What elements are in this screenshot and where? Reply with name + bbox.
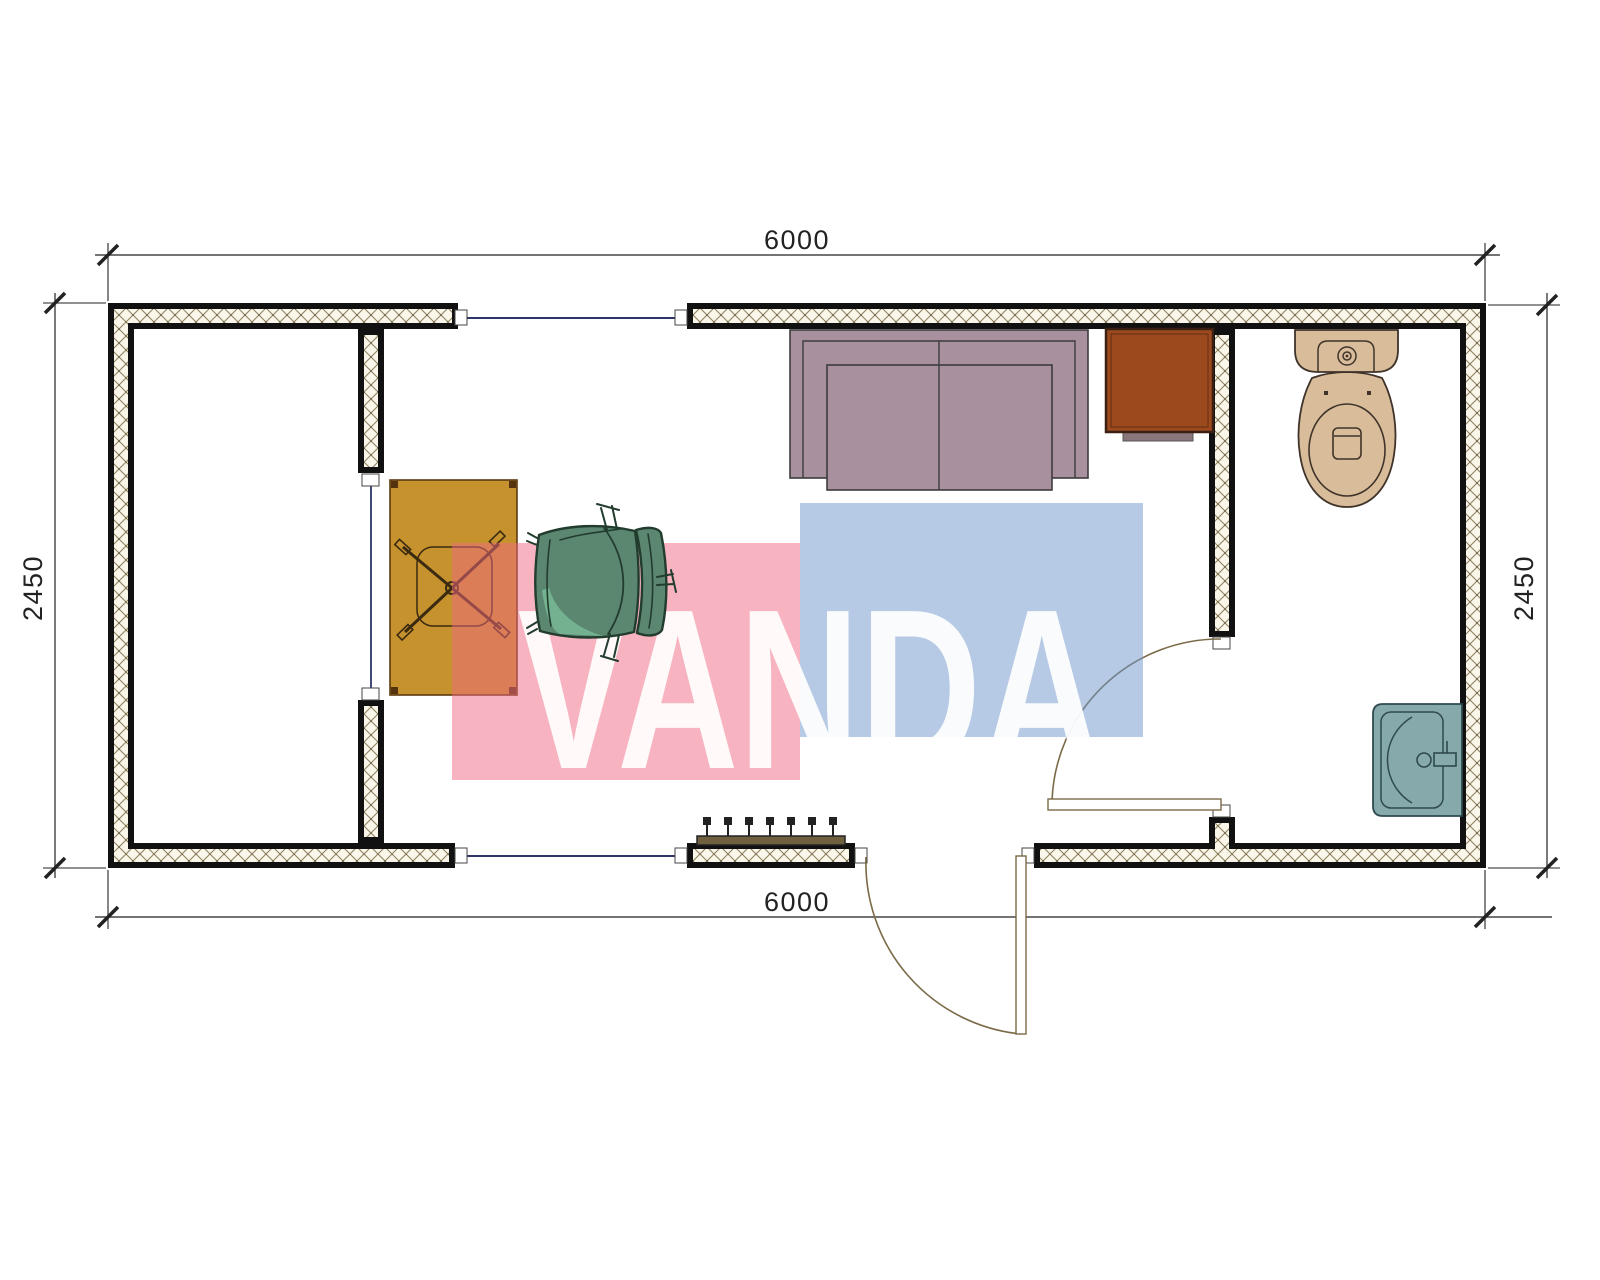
hatch-partition-lower xyxy=(364,706,378,837)
toilet-flush-dot xyxy=(1346,355,1349,358)
dimension-right: 2450 xyxy=(1488,293,1560,878)
window-bottom xyxy=(455,848,687,863)
radiator-fin-cap xyxy=(703,817,711,825)
sink xyxy=(1373,704,1462,816)
dimension-bottom: 6000 xyxy=(95,870,1552,929)
radiator-fin-cap xyxy=(829,817,837,825)
dim-label-top: 6000 xyxy=(764,225,830,255)
hatch-top-left xyxy=(114,309,452,323)
hatch-right xyxy=(1466,309,1480,862)
radiator-fin-cap xyxy=(787,817,795,825)
dim-label-bottom: 6000 xyxy=(764,887,830,917)
radiator-body xyxy=(697,836,845,845)
radiator xyxy=(697,817,845,845)
window-top xyxy=(455,310,687,325)
toilet-hinge xyxy=(1367,391,1371,395)
dim-label-left: 2450 xyxy=(18,555,48,621)
floor-plan-page: 6000 6000 2450 2450 xyxy=(0,0,1600,1280)
cabinet-step xyxy=(1123,432,1193,441)
floor-plan-canvas: 6000 6000 2450 2450 xyxy=(0,0,1600,1280)
door-leaf xyxy=(1016,856,1026,1034)
window-jamb xyxy=(455,848,467,863)
dimension-top: 6000 xyxy=(95,225,1500,301)
partition-opening xyxy=(362,474,379,700)
hatch-pier xyxy=(1215,823,1229,862)
window-jamb xyxy=(455,310,467,325)
toilet xyxy=(1295,330,1398,507)
door-jamb xyxy=(362,688,379,700)
desk-corner xyxy=(391,687,398,694)
toilet-hinge xyxy=(1324,391,1328,395)
hatch-bottom-left xyxy=(114,849,449,862)
door-jamb xyxy=(362,474,379,486)
door-swing-arc xyxy=(866,857,1021,1034)
radiator-fin-cap xyxy=(766,817,774,825)
cabinet xyxy=(1106,329,1213,441)
window-jamb xyxy=(675,310,687,325)
hatch-partition-upper xyxy=(364,335,378,467)
toilet-bowl xyxy=(1299,372,1396,507)
hatch-bottom-right xyxy=(1040,849,1480,862)
hatch-left xyxy=(114,309,128,862)
sink-faucet-body xyxy=(1434,753,1456,766)
cabinet-body xyxy=(1106,329,1213,432)
sofa xyxy=(790,330,1088,490)
dimension-left: 2450 xyxy=(18,293,106,878)
hatch-partition-bathroom xyxy=(1215,335,1229,631)
dim-label-right: 2450 xyxy=(1509,555,1539,621)
hatch-bottom-mid xyxy=(693,849,849,862)
desk-corner xyxy=(509,481,516,488)
radiator-fin-cap xyxy=(724,817,732,825)
radiator-fin-cap xyxy=(745,817,753,825)
entrance-door xyxy=(866,856,1026,1034)
hatch-top-right xyxy=(693,309,1480,323)
radiator-fin-cap xyxy=(808,817,816,825)
desk-corner xyxy=(391,481,398,488)
window-jamb xyxy=(675,848,687,863)
